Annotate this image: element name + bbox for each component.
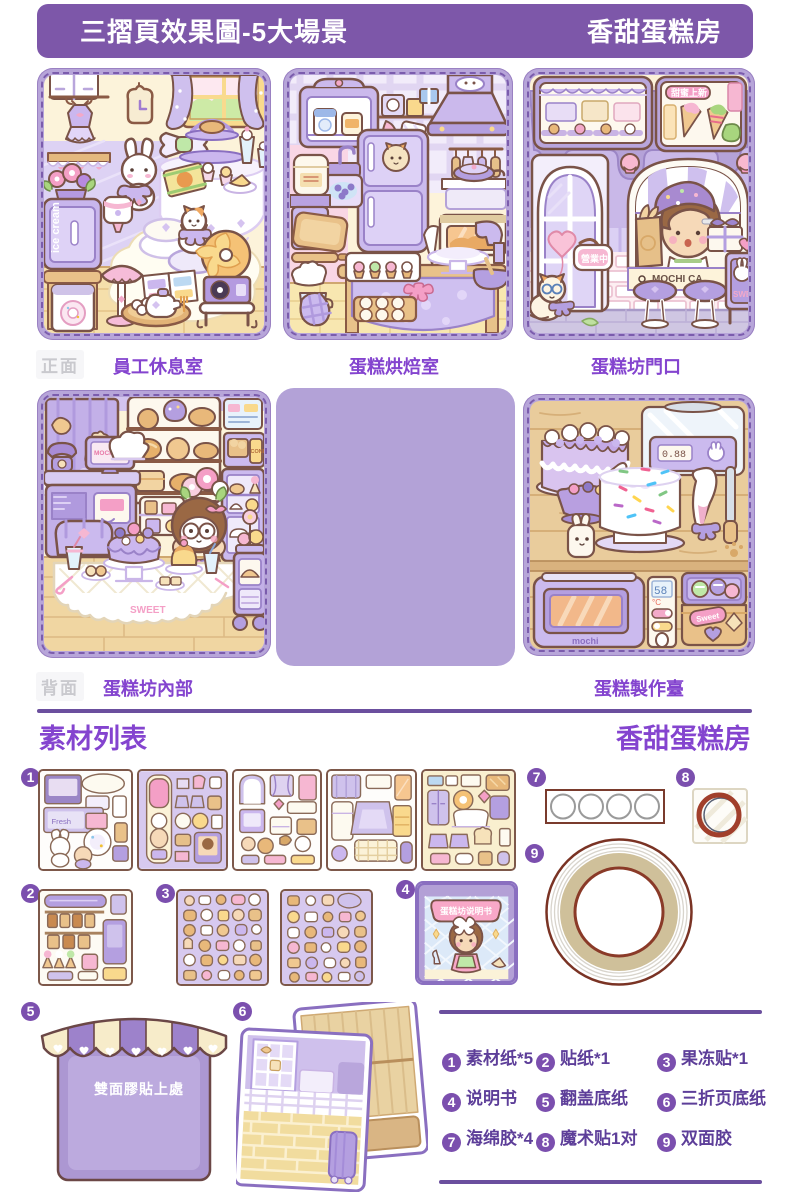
svg-text:0.88: 0.88 bbox=[662, 450, 686, 461]
svg-text:ice cream: ice cream bbox=[50, 202, 62, 253]
svg-text:蛋糕坊说明书: 蛋糕坊说明书 bbox=[440, 905, 492, 916]
svg-text:CONE: CONE bbox=[251, 449, 265, 455]
svg-text:58: 58 bbox=[654, 586, 667, 598]
svg-text:營業中: 營業中 bbox=[580, 253, 608, 264]
svg-text:SWEET: SWEET bbox=[733, 290, 748, 299]
svg-text:甜蜜上新: 甜蜜上新 bbox=[671, 87, 707, 98]
svg-text:°C: °C bbox=[652, 598, 661, 607]
svg-text:雙面膠貼上處: 雙面膠貼上處 bbox=[94, 1081, 184, 1097]
svg-text:SWEET: SWEET bbox=[130, 605, 166, 616]
svg-text:Fresh: Fresh bbox=[51, 817, 71, 826]
svg-text:mochi: mochi bbox=[572, 636, 599, 646]
